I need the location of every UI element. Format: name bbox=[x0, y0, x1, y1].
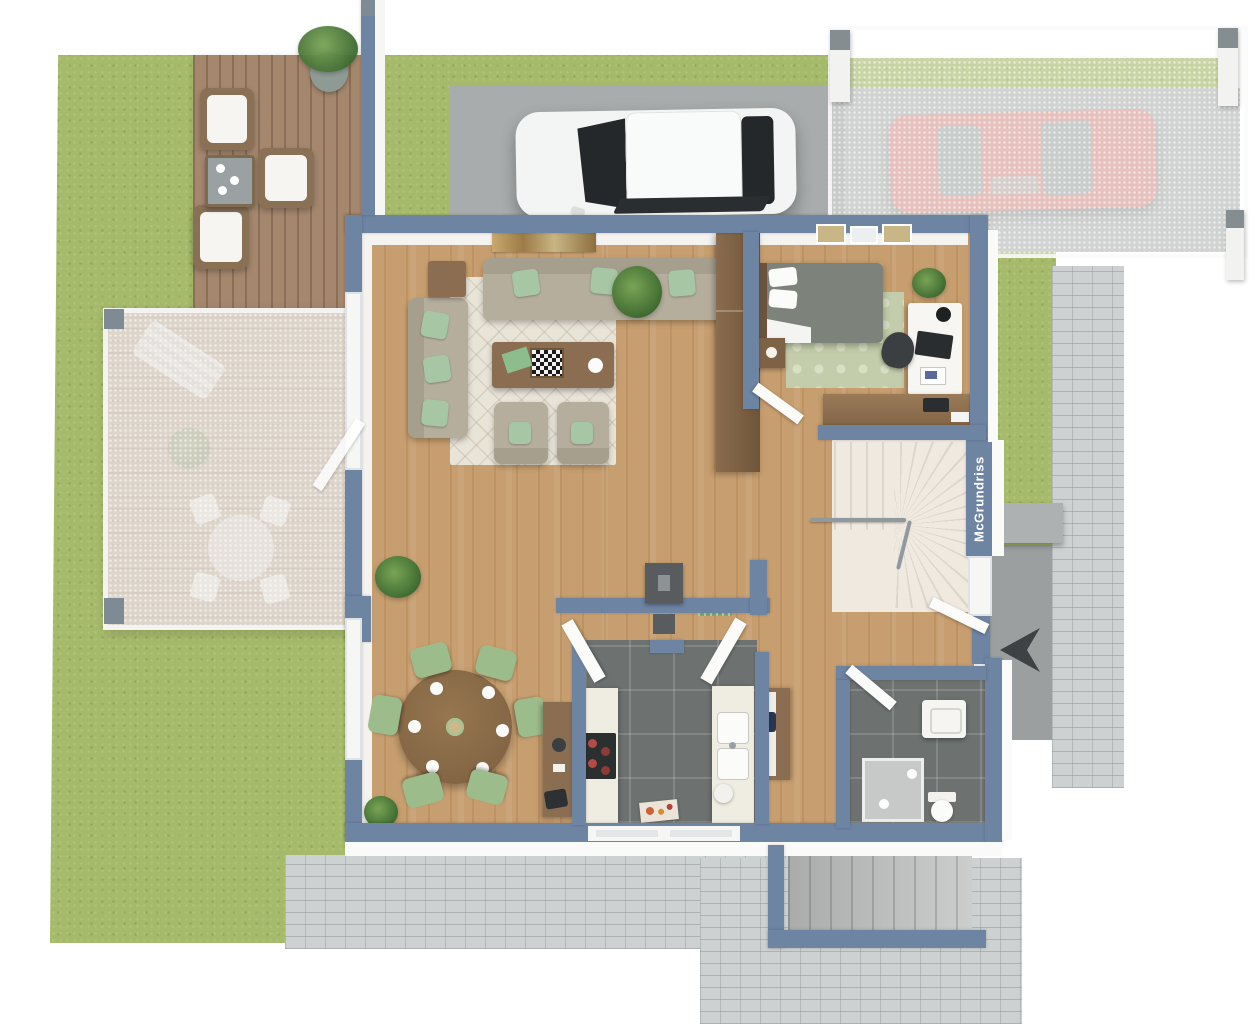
deck-coffee-table bbox=[205, 155, 255, 207]
basement-stairs-steps bbox=[788, 856, 972, 932]
desk-lamp bbox=[936, 307, 951, 322]
sink-faucet bbox=[729, 742, 736, 749]
coffee-table bbox=[492, 342, 614, 388]
window-west-dining bbox=[345, 618, 362, 760]
white-car-side-windows bbox=[613, 196, 771, 214]
bath-vanity-sink bbox=[922, 700, 966, 738]
wall-hall-stub bbox=[750, 560, 767, 615]
deck-armchair-2 bbox=[193, 205, 249, 269]
kitchen-sink bbox=[717, 712, 747, 778]
bedroom-wall-frame-1 bbox=[816, 224, 846, 244]
north-arrow-icon bbox=[998, 626, 1042, 672]
kitchen-cooktop bbox=[582, 733, 616, 779]
desk-monitor bbox=[915, 331, 954, 360]
wallface-south-exterior bbox=[345, 842, 1002, 856]
white-car-rear-window bbox=[741, 116, 775, 205]
desk-magazine bbox=[920, 367, 946, 385]
side-table bbox=[428, 261, 466, 297]
dining-table bbox=[398, 670, 512, 784]
dining-dark-object bbox=[544, 788, 569, 810]
carport-post-cap-tr bbox=[1218, 28, 1238, 48]
bath-shower bbox=[862, 758, 924, 822]
sideboard-vase bbox=[552, 738, 566, 752]
wallface-east-stairwell bbox=[992, 440, 1004, 556]
deck-armchair-1 bbox=[200, 88, 254, 150]
sofa-west bbox=[408, 298, 468, 438]
carport-post-cap-br bbox=[1226, 210, 1244, 228]
watermark: McGrundriss bbox=[966, 444, 992, 554]
wallface-east-bath bbox=[1002, 660, 1012, 840]
bedroom-desk bbox=[908, 303, 962, 395]
wall-deck-divider-cap bbox=[361, 0, 375, 16]
kitchen-cutting-board bbox=[639, 799, 679, 823]
table-plate bbox=[588, 358, 603, 373]
wall-deck-divider-face bbox=[375, 0, 385, 215]
dining-centerpiece bbox=[446, 718, 464, 736]
wall-east-bedroom bbox=[970, 215, 988, 445]
pergola-post-cap-tl bbox=[104, 309, 124, 329]
wall-dining-kitchen bbox=[572, 640, 586, 825]
bed bbox=[757, 263, 883, 343]
wall-kitchen-stub bbox=[650, 640, 684, 653]
armchair-2 bbox=[557, 402, 609, 464]
stairs-railing-h bbox=[810, 518, 906, 522]
wall-stairs-north bbox=[818, 425, 986, 440]
deck-plant bbox=[298, 26, 358, 72]
carport-post-cap-tl bbox=[830, 30, 850, 50]
nightstand-lamp bbox=[766, 347, 777, 358]
nightstand bbox=[757, 338, 785, 368]
bath-toilet bbox=[928, 792, 956, 824]
bedroom-plant bbox=[912, 268, 946, 298]
white-car bbox=[515, 108, 797, 219]
living-plant bbox=[612, 266, 662, 318]
bed-pillow-1 bbox=[768, 267, 798, 288]
plant-by-terrace-door bbox=[375, 556, 421, 598]
armchair-1 bbox=[494, 402, 548, 464]
bedroom-wall-frame-2 bbox=[850, 226, 878, 244]
shower-head bbox=[907, 769, 917, 779]
wallface-east-bedroom bbox=[988, 230, 998, 442]
bed-pillow-2 bbox=[768, 289, 797, 309]
sideboard-deco-dark bbox=[923, 398, 949, 412]
table-napkin bbox=[502, 346, 533, 373]
chess-board bbox=[532, 350, 562, 376]
wall-bath-west bbox=[836, 680, 850, 828]
chimney bbox=[645, 563, 683, 603]
bedroom-wall-frame-3 bbox=[882, 224, 912, 244]
sideboard-tray bbox=[951, 412, 969, 422]
floor-plan-scene: McGrundriss bbox=[0, 0, 1259, 1024]
sofa-north bbox=[483, 258, 739, 320]
bedroom-sideboard bbox=[823, 394, 977, 426]
deck-armchair-3 bbox=[258, 148, 314, 208]
basement-stairs-wall-south bbox=[768, 930, 986, 948]
wallface-west-interior bbox=[362, 233, 372, 823]
wall-kitchen-hall bbox=[755, 652, 769, 824]
entry-door-frame bbox=[968, 556, 992, 616]
wall-east-bath bbox=[985, 658, 1002, 842]
stairs-winder bbox=[894, 442, 968, 608]
pergola-post-cap-bl bbox=[104, 598, 124, 624]
wall-deck-divider bbox=[361, 0, 375, 215]
wall-living-bedroom bbox=[743, 232, 759, 409]
kitchen-bin bbox=[714, 784, 733, 803]
chimney-lower bbox=[653, 614, 675, 634]
window-kitchen-south bbox=[588, 826, 740, 841]
